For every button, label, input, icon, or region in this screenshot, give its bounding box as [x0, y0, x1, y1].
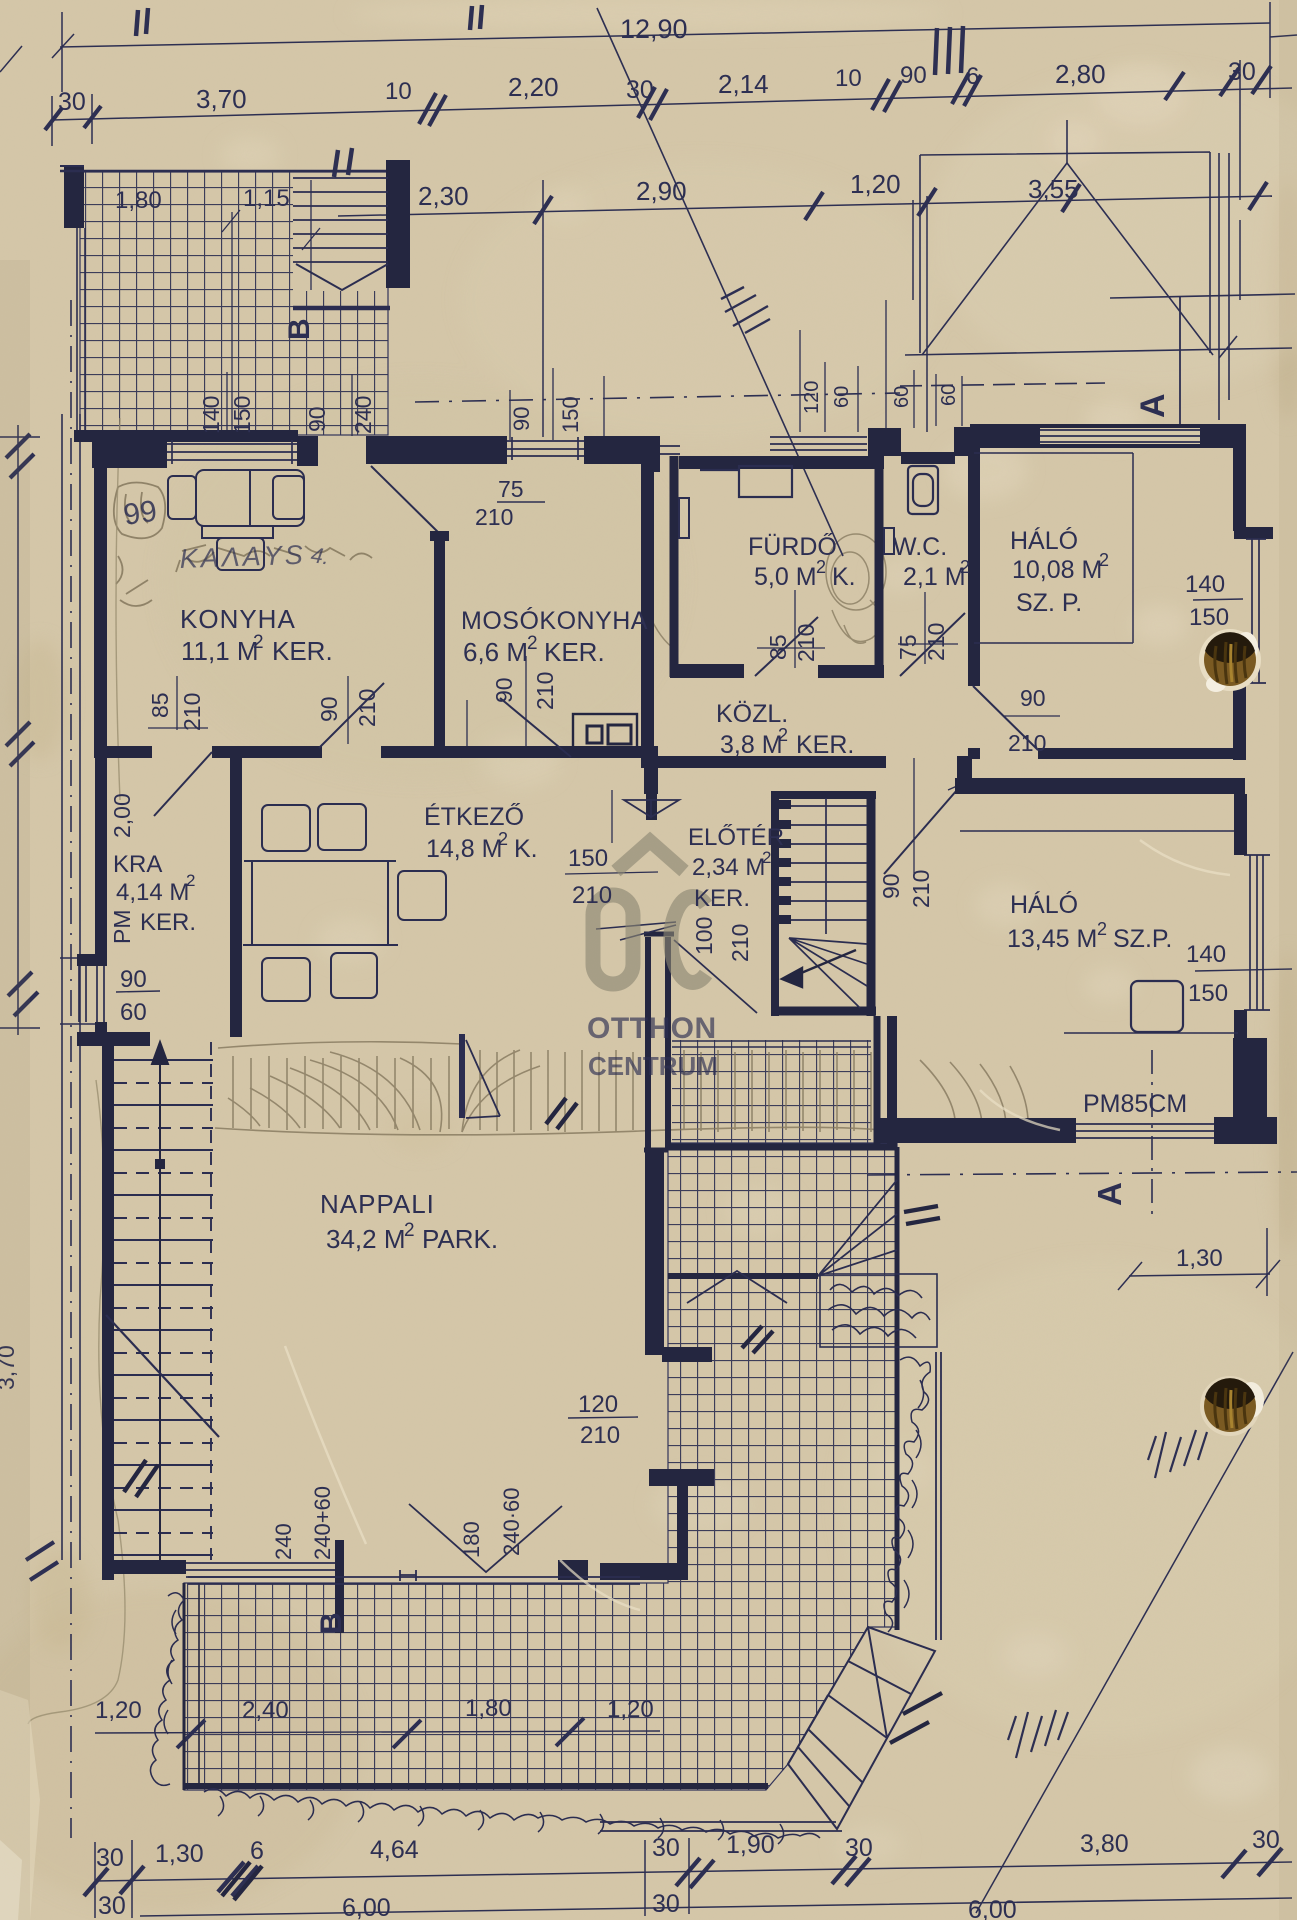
svg-text:60: 60 [120, 999, 147, 1026]
svg-text:30: 30 [845, 1834, 873, 1862]
svg-text:150: 150 [1189, 604, 1229, 631]
svg-text:150: 150 [1188, 980, 1228, 1007]
svg-text:KRA: KRA [113, 851, 162, 878]
svg-text:2,20: 2,20 [508, 72, 559, 102]
svg-text:6: 6 [966, 63, 979, 90]
svg-text:3,70: 3,70 [196, 84, 247, 114]
svg-text:CENTRUM: CENTRUM [588, 1051, 718, 1081]
svg-text:2,80: 2,80 [1055, 59, 1106, 89]
svg-text:PM85CM: PM85CM [1083, 1090, 1187, 1118]
svg-text:KÖZL.: KÖZL. [716, 700, 788, 728]
svg-text:3,80: 3,80 [1080, 1830, 1129, 1858]
svg-text:1,90: 1,90 [726, 1831, 775, 1859]
svg-text:2: 2 [1099, 550, 1109, 570]
svg-text:SZ. P.: SZ. P. [1016, 589, 1082, 617]
svg-text:90: 90 [316, 696, 342, 722]
svg-text:KONYHA: KONYHA [180, 604, 296, 634]
svg-text:90: 90 [878, 873, 904, 899]
svg-text:30: 30 [58, 88, 86, 116]
svg-text:12,90: 12,90 [620, 14, 688, 44]
svg-text:75: 75 [895, 634, 921, 660]
svg-text:90: 90 [1020, 685, 1046, 711]
svg-text:1,30: 1,30 [1176, 1245, 1223, 1272]
svg-text:210: 210 [908, 870, 934, 908]
svg-text:30: 30 [626, 76, 654, 104]
svg-text:3,55: 3,55 [1028, 174, 1079, 204]
svg-text:A: A [1091, 1182, 1128, 1206]
svg-text:210: 210 [475, 504, 513, 530]
svg-text:OTTHON: OTTHON [587, 1012, 717, 1045]
svg-text:2,14: 2,14 [718, 69, 769, 99]
svg-text:140: 140 [1185, 571, 1225, 598]
svg-text:KER.: KER. [140, 909, 196, 936]
svg-text:210: 210 [793, 624, 819, 662]
svg-text:85: 85 [147, 692, 173, 718]
svg-text:KER.: KER. [694, 885, 750, 912]
svg-text:60: 60 [938, 384, 960, 406]
svg-text:10,08 M: 10,08 M [1012, 556, 1102, 584]
svg-text:210: 210 [580, 1422, 620, 1449]
svg-text:210: 210 [727, 924, 753, 962]
svg-text:KER.: KER. [272, 636, 333, 666]
svg-text:1,20: 1,20 [95, 1697, 142, 1724]
svg-text:140: 140 [198, 396, 224, 434]
svg-text:75: 75 [498, 476, 524, 502]
svg-text:99: 99 [121, 495, 159, 532]
svg-text:140: 140 [1186, 941, 1226, 968]
svg-text:4.: 4. [309, 542, 331, 569]
svg-text:PARK.: PARK. [422, 1224, 498, 1254]
svg-text:2: 2 [186, 871, 195, 890]
svg-text:1,15: 1,15 [243, 185, 290, 212]
svg-text:1,20: 1,20 [850, 169, 901, 199]
svg-text:210: 210 [179, 693, 205, 731]
svg-text:30: 30 [1252, 1826, 1280, 1854]
svg-text:5,0 M: 5,0 M [754, 563, 817, 591]
svg-text:6,6 M: 6,6 M [463, 637, 528, 667]
svg-text:1,80: 1,80 [115, 187, 162, 214]
svg-text:100: 100 [691, 917, 717, 955]
svg-text:90: 90 [120, 966, 147, 993]
svg-text:2: 2 [253, 632, 264, 653]
svg-text:PM: PM [109, 910, 135, 945]
svg-text:2,90: 2,90 [636, 176, 687, 206]
svg-text:K.: K. [832, 563, 856, 591]
svg-text:6,00: 6,00 [342, 1894, 391, 1920]
svg-text:NAPPALI: NAPPALI [320, 1189, 435, 1219]
svg-text:85: 85 [765, 634, 791, 660]
svg-text:SZ.P.: SZ.P. [1113, 925, 1172, 953]
svg-text:30: 30 [96, 1844, 124, 1872]
svg-text:34,2 M: 34,2 M [326, 1224, 406, 1254]
svg-text:3,8 M: 3,8 M [720, 731, 783, 759]
svg-text:B: B [315, 1612, 348, 1634]
svg-text:HÁLÓ: HÁLÓ [1010, 890, 1078, 919]
svg-text:2,00: 2,00 [109, 793, 135, 838]
svg-text:150: 150 [568, 845, 608, 872]
svg-text:210: 210 [923, 623, 949, 661]
svg-text:30: 30 [652, 1890, 680, 1918]
svg-text:2: 2 [1097, 919, 1107, 939]
svg-text:30: 30 [652, 1834, 680, 1862]
svg-text:KER.: KER. [796, 731, 854, 759]
svg-text:240: 240 [271, 1523, 296, 1560]
svg-text:B: B [283, 318, 316, 340]
svg-text:90: 90 [900, 62, 927, 89]
svg-text:2,40: 2,40 [242, 1697, 289, 1724]
svg-text:240: 240 [350, 396, 376, 434]
svg-text:4,64: 4,64 [370, 1836, 419, 1864]
svg-text:14,8 M: 14,8 M [426, 835, 502, 863]
svg-text:30: 30 [1228, 58, 1256, 86]
svg-text:2: 2 [960, 557, 970, 577]
svg-text:MOSÓKONYHA: MOSÓKONYHA [461, 606, 648, 635]
svg-text:2: 2 [527, 633, 538, 654]
svg-text:60: 60 [891, 386, 913, 408]
svg-text:6: 6 [250, 1837, 264, 1865]
svg-text:30: 30 [98, 1892, 126, 1920]
svg-text:240+60: 240+60 [310, 1486, 335, 1560]
svg-text:90: 90 [509, 407, 534, 431]
svg-text:K.: K. [514, 835, 538, 863]
svg-text:HÁLÓ: HÁLÓ [1010, 526, 1078, 555]
svg-text:90: 90 [304, 406, 330, 432]
svg-text:11,1 M: 11,1 M [181, 636, 259, 666]
svg-text:W.C.: W.C. [893, 533, 947, 561]
svg-text:210: 210 [354, 689, 380, 727]
svg-text:210: 210 [532, 672, 558, 710]
svg-text:2,34 M: 2,34 M [692, 854, 765, 881]
svg-text:2: 2 [762, 848, 771, 867]
svg-text:ÉTKEZŐ: ÉTKEZŐ [424, 802, 524, 831]
svg-text:240·60: 240·60 [499, 1487, 524, 1556]
svg-text:13,45 M: 13,45 M [1007, 925, 1097, 953]
svg-text:1,80: 1,80 [465, 1695, 512, 1722]
svg-text:60: 60 [831, 386, 853, 408]
svg-text:1,30: 1,30 [155, 1840, 204, 1868]
svg-text:ELŐTÉR: ELŐTÉR [688, 824, 784, 851]
svg-text:210: 210 [1008, 730, 1046, 756]
svg-text:2,30: 2,30 [418, 181, 469, 211]
svg-text:150: 150 [229, 396, 255, 434]
svg-text:2: 2 [816, 557, 826, 577]
svg-text:2,1 M: 2,1 M [903, 563, 966, 591]
svg-text:210: 210 [572, 882, 612, 909]
svg-text:10: 10 [385, 78, 412, 105]
svg-text:KAΛAΥS: KAΛAΥS [179, 540, 306, 574]
svg-text:4,14 M: 4,14 M [116, 879, 189, 906]
svg-text:A: A [1134, 393, 1172, 418]
svg-text:2: 2 [778, 725, 788, 745]
svg-text:120: 120 [801, 381, 823, 414]
svg-text:150: 150 [558, 396, 583, 433]
svg-text:2: 2 [498, 829, 508, 849]
svg-text:6,00: 6,00 [968, 1896, 1017, 1920]
svg-text:180: 180 [459, 1521, 484, 1558]
svg-text:90: 90 [491, 677, 517, 703]
svg-text:120: 120 [578, 1391, 618, 1418]
svg-text:2: 2 [404, 1220, 415, 1241]
svg-text:KER.: KER. [544, 637, 605, 667]
svg-text:10: 10 [835, 65, 862, 92]
svg-text:1,20: 1,20 [607, 1696, 654, 1723]
